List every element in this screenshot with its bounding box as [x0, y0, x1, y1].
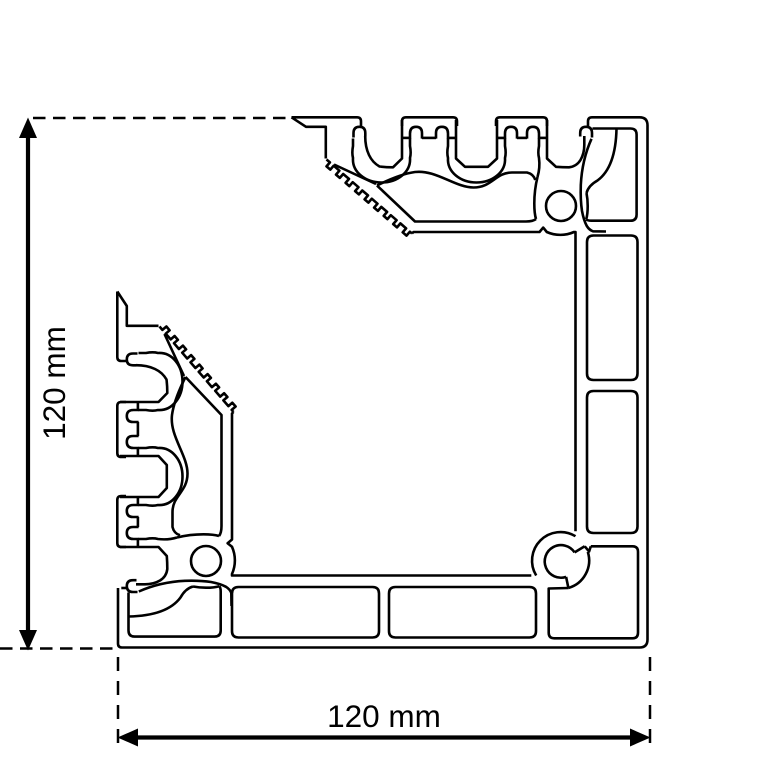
- svg-text:120 mm: 120 mm: [36, 326, 72, 440]
- svg-text:120 mm: 120 mm: [327, 698, 441, 734]
